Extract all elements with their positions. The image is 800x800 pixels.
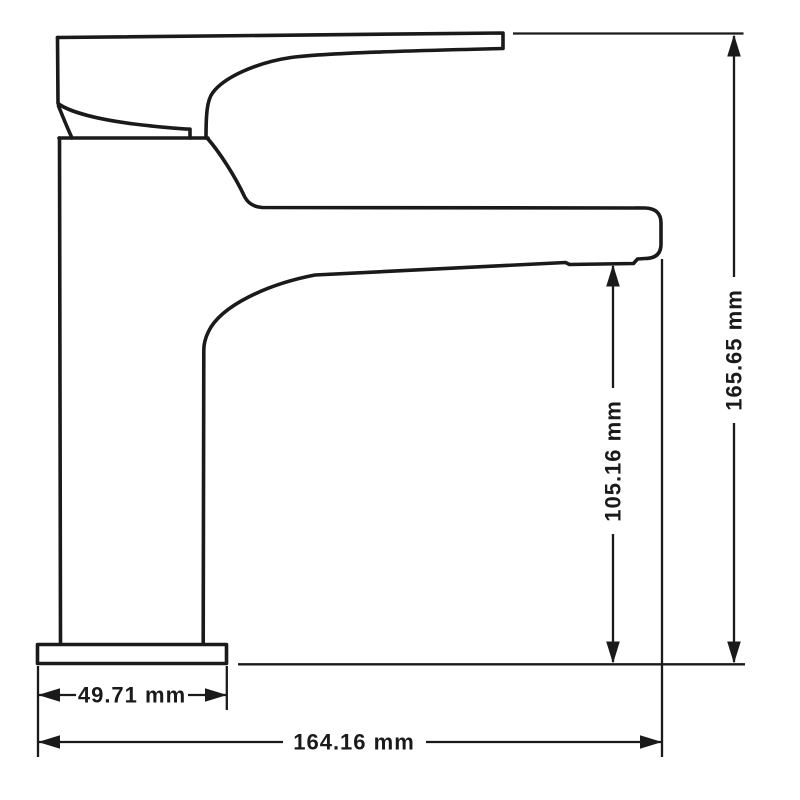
dimension-spout-height: 105.16 mm (601, 265, 626, 664)
arrow-down-total-height (727, 642, 741, 664)
spout-and-body-right (203, 139, 661, 644)
arrow-right-base-width (205, 688, 227, 702)
dimension-label-total-height: 165.65 mm (722, 289, 747, 411)
arrow-up-total-height (727, 35, 741, 57)
dimension-label-base-width: 49.71 mm (78, 683, 186, 708)
arrow-left-total-reach (38, 735, 60, 749)
arrow-left-base-width (38, 688, 60, 702)
technical-drawing-canvas: 165.65 mm 105.16 mm 49.71 mm 164.16 mm (0, 0, 800, 800)
base-plate (38, 645, 227, 664)
arrow-down-spout-height (606, 642, 620, 664)
dimension-base-width: 49.71 mm (38, 683, 227, 708)
dimension-total-reach: 164.16 mm (38, 730, 662, 755)
body-left-edge (60, 138, 61, 644)
faucet-dimension-drawing: 165.65 mm 105.16 mm 49.71 mm 164.16 mm (0, 0, 800, 800)
dimension-label-spout-height: 105.16 mm (601, 400, 626, 522)
arrow-up-spout-height (606, 265, 620, 287)
faucet-outline (38, 33, 662, 664)
handle-head-bottom (58, 38, 191, 139)
dimension-total-height: 165.65 mm (722, 35, 747, 664)
arrow-right-total-reach (640, 735, 662, 749)
dimension-label-total-reach: 164.16 mm (293, 730, 415, 755)
extension-lines (38, 34, 745, 758)
